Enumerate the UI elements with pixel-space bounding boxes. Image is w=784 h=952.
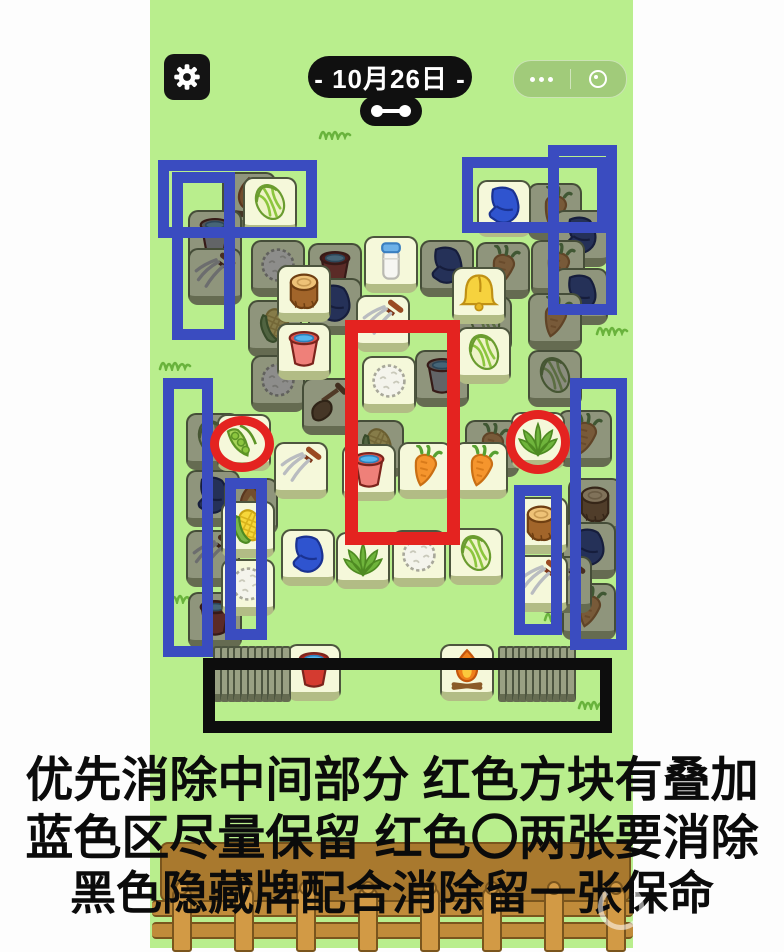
carrot-tile[interactable] — [398, 442, 452, 499]
tip-line-3: 黑色隐藏牌配合消除留一张保命 — [0, 857, 784, 923]
cabbage-icon — [248, 180, 292, 224]
date-badge: - 10月26日 - — [308, 56, 472, 98]
watermark-logo — [598, 884, 644, 930]
grass-doodle-icon — [577, 694, 611, 715]
gear-icon — [170, 60, 204, 94]
fork-tile[interactable] — [356, 295, 410, 352]
record-circle-icon — [589, 70, 607, 88]
pea-icon — [222, 417, 266, 461]
cauliflower-icon — [367, 359, 411, 403]
link-badge[interactable] — [360, 96, 422, 126]
stump-icon — [282, 268, 326, 312]
carrot-icon — [563, 413, 607, 457]
carrot-icon — [533, 296, 577, 340]
carrot-tile — [528, 293, 582, 350]
milk-tile[interactable] — [364, 236, 418, 293]
cabbage-tile[interactable] — [449, 528, 503, 585]
bell-tile[interactable] — [452, 267, 506, 324]
shovel-icon — [307, 381, 351, 425]
bell-icon — [457, 270, 501, 314]
bucket-pink-tile[interactable] — [277, 323, 331, 380]
fire-icon — [445, 647, 489, 691]
corn-icon — [226, 504, 270, 548]
more-button[interactable] — [514, 61, 570, 97]
bucket-red-icon — [292, 647, 336, 691]
carrot-icon — [459, 445, 503, 489]
grass-doodle-icon — [158, 355, 192, 376]
grass-tile[interactable] — [336, 532, 390, 589]
bucket-pink-icon — [347, 447, 391, 491]
cabbage-icon — [454, 531, 498, 575]
cabbage-icon — [462, 330, 506, 374]
cauliflower-tile[interactable] — [362, 356, 416, 413]
miniprogram-capsule — [513, 60, 627, 98]
stump-icon — [573, 481, 617, 525]
fork-icon — [193, 251, 237, 295]
fire-tile[interactable] — [440, 644, 494, 701]
glove-icon — [482, 183, 526, 227]
grass-doodle-icon — [318, 124, 352, 145]
pea-tile[interactable] — [217, 414, 271, 471]
stump-tile[interactable] — [514, 497, 568, 554]
cauliflower-tile[interactable] — [392, 530, 446, 587]
close-minimize-button[interactable] — [571, 61, 627, 97]
fork-icon — [519, 558, 563, 602]
corn-tile[interactable] — [221, 501, 275, 558]
bucket-red-tile[interactable] — [287, 644, 341, 701]
cabbage-icon — [533, 353, 577, 397]
glove-icon — [286, 532, 330, 576]
more-dots-icon — [530, 77, 535, 82]
bucket-pink-tile[interactable] — [342, 444, 396, 501]
grass-icon — [516, 415, 560, 459]
stump-tile[interactable] — [277, 265, 331, 322]
cauliflower-icon — [226, 562, 270, 606]
fork-tile[interactable] — [274, 442, 328, 499]
milk-icon — [369, 239, 413, 283]
settings-button[interactable] — [164, 54, 210, 100]
fork-icon — [279, 445, 323, 489]
cabbage-tile[interactable] — [243, 177, 297, 234]
grass-tile[interactable] — [511, 412, 565, 469]
fork-icon — [361, 298, 405, 342]
fork-tile — [188, 248, 242, 305]
cauliflower-icon — [397, 533, 441, 577]
link-dumbbell-icon — [371, 105, 411, 117]
fork-tile[interactable] — [514, 555, 568, 612]
screenshot-stage: - 10月26日 - 优先消除中间部分 红色方块有叠加 蓝色区尽量保留 红色〇两… — [0, 0, 784, 948]
stump-icon — [519, 500, 563, 544]
cauliflower-tile[interactable] — [221, 559, 275, 616]
date-label: - 10月26日 - — [314, 59, 466, 96]
carrot-icon — [403, 445, 447, 489]
glove-tile[interactable] — [477, 180, 531, 237]
cabbage-tile[interactable] — [457, 327, 511, 384]
glove-tile[interactable] — [281, 529, 335, 586]
grass-icon — [341, 535, 385, 579]
cabbage-tile — [528, 350, 582, 407]
bucket-pink-icon — [282, 326, 326, 370]
shovel-tile — [302, 378, 356, 435]
carrot-tile — [558, 410, 612, 467]
right-stack-card — [566, 646, 576, 702]
carrot-tile[interactable] — [454, 442, 508, 499]
left-stack-card — [281, 646, 291, 702]
